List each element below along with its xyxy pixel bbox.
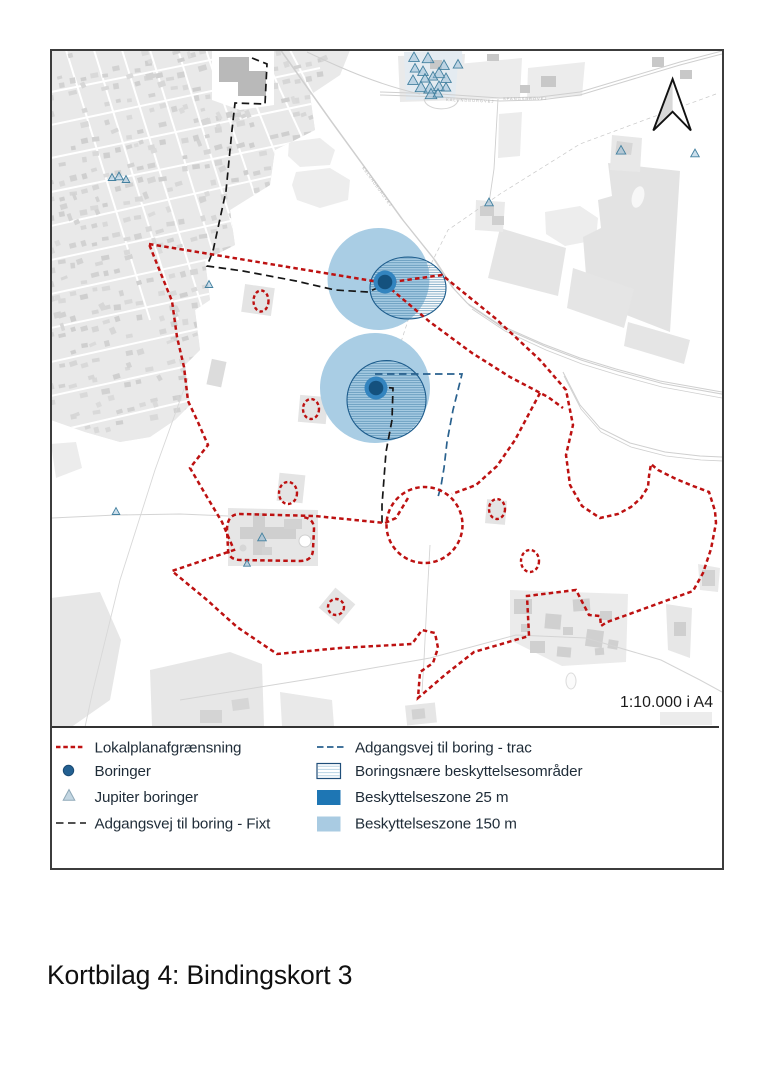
svg-text:1:10.000 i A4: 1:10.000 i A4 <box>620 694 713 711</box>
svg-text:Adgangsvej til boring - Fixt: Adgangsvej til boring - Fixt <box>95 815 272 832</box>
svg-text:Beskyttelseszone 150 m: Beskyttelseszone 150 m <box>355 815 517 832</box>
svg-text:Adgangsvej til boring - trac: Adgangsvej til boring - trac <box>355 739 532 756</box>
svg-text:Jupiter boringer: Jupiter boringer <box>95 789 199 806</box>
svg-text:Lokalplanafgrænsning: Lokalplanafgrænsning <box>95 739 242 756</box>
svg-text:Boringsnære beskyttelsesområde: Boringsnære beskyttelsesområder <box>355 763 583 780</box>
svg-text:SPANGSBROVEJ: SPANGSBROVEJ <box>503 96 547 101</box>
svg-text:Beskyttelseszone 25 m: Beskyttelseszone 25 m <box>355 789 509 806</box>
svg-text:Boringer: Boringer <box>95 763 151 780</box>
